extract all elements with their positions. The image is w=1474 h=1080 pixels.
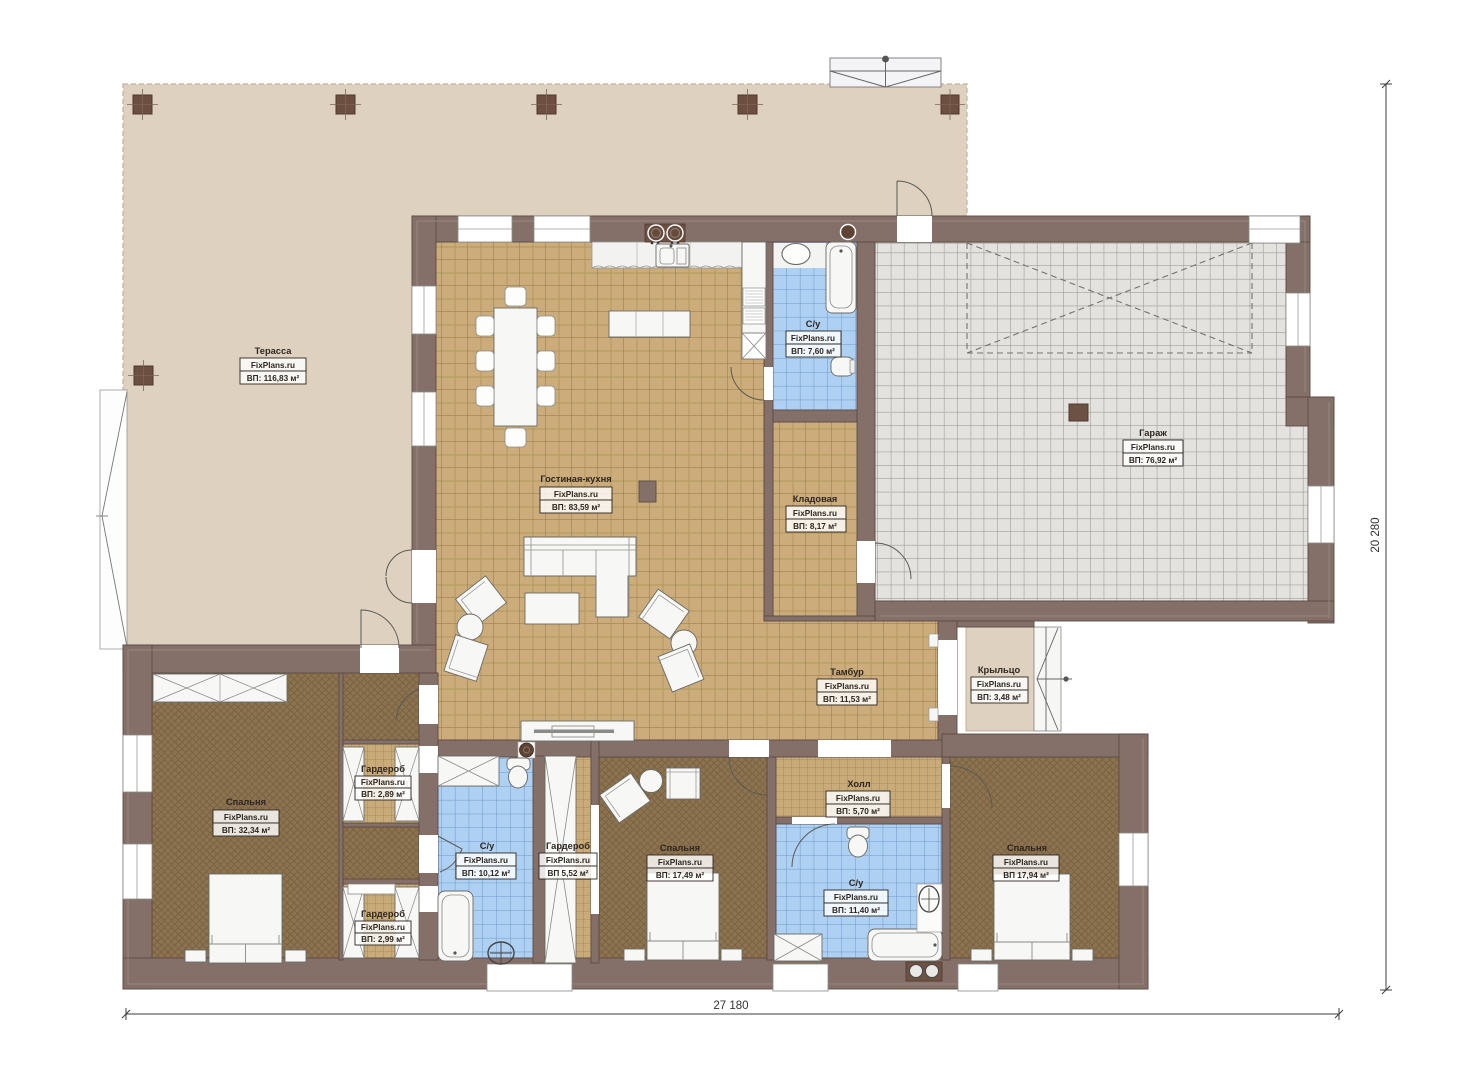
- svg-text:FixPlans.ru: FixPlans.ru: [361, 778, 405, 787]
- svg-text:ВП: 2,89 м²: ВП: 2,89 м²: [361, 790, 405, 799]
- svg-text:FixPlans.ru: FixPlans.ru: [793, 509, 837, 518]
- svg-text:FixPlans.ru: FixPlans.ru: [361, 923, 405, 932]
- svg-text:FixPlans.ru: FixPlans.ru: [554, 490, 598, 499]
- svg-text:Спальня: Спальня: [226, 797, 266, 807]
- svg-text:Гостиная-кухня: Гостиная-кухня: [540, 474, 611, 484]
- svg-text:Гараж: Гараж: [1139, 428, 1167, 438]
- svg-text:ВП: 8,17 м²: ВП: 8,17 м²: [793, 522, 837, 531]
- svg-text:ВП: 17,49 м²: ВП: 17,49 м²: [656, 871, 705, 880]
- svg-text:ВП: 10,12 м²: ВП: 10,12 м²: [462, 869, 511, 878]
- svg-text:Терасса: Терасса: [255, 346, 293, 356]
- svg-text:Гардероб: Гардероб: [361, 909, 405, 919]
- svg-text:FixPlans.ru: FixPlans.ru: [791, 334, 835, 343]
- svg-text:ВП: 5,70 м²: ВП: 5,70 м²: [836, 807, 880, 816]
- svg-text:FixPlans.ru: FixPlans.ru: [1004, 858, 1048, 867]
- svg-text:Холл: Холл: [847, 779, 870, 789]
- svg-text:ВП 5,52 м²: ВП 5,52 м²: [547, 869, 588, 878]
- svg-text:ВП: 116,83 м²: ВП: 116,83 м²: [247, 374, 300, 383]
- svg-text:FixPlans.ru: FixPlans.ru: [658, 858, 702, 867]
- svg-text:ВП: 2,99 м²: ВП: 2,99 м²: [361, 935, 405, 944]
- svg-text:ВП: 11,40 м²: ВП: 11,40 м²: [832, 906, 880, 915]
- svg-text:FixPlans.ru: FixPlans.ru: [834, 893, 878, 902]
- svg-text:Спальня: Спальня: [1007, 843, 1047, 853]
- svg-text:ВП: 83,59 м²: ВП: 83,59 м²: [552, 503, 601, 512]
- svg-text:20 280: 20 280: [1370, 517, 1382, 552]
- svg-text:Гардероб: Гардероб: [361, 764, 405, 774]
- svg-text:FixPlans.ru: FixPlans.ru: [251, 361, 295, 370]
- svg-text:FixPlans.ru: FixPlans.ru: [464, 856, 508, 865]
- svg-text:FixPlans.ru: FixPlans.ru: [546, 856, 590, 865]
- svg-text:FixPlans.ru: FixPlans.ru: [224, 813, 268, 822]
- svg-text:FixPlans.ru: FixPlans.ru: [1131, 443, 1175, 452]
- svg-text:ВП: 3,48 м²: ВП: 3,48 м²: [977, 693, 1021, 702]
- svg-text:ВП: 76,92 м²: ВП: 76,92 м²: [1129, 456, 1178, 465]
- svg-text:27 180: 27 180: [713, 1000, 748, 1012]
- svg-text:С/у: С/у: [480, 841, 495, 851]
- svg-text:Крыльцо: Крыльцо: [978, 665, 1021, 675]
- svg-text:Спальня: Спальня: [660, 843, 700, 853]
- svg-text:FixPlans.ru: FixPlans.ru: [836, 794, 880, 803]
- svg-text:Тамбур: Тамбур: [830, 667, 864, 677]
- svg-text:FixPlans.ru: FixPlans.ru: [825, 682, 869, 691]
- svg-text:ВП: 32,34 м²: ВП: 32,34 м²: [222, 826, 271, 835]
- svg-text:Кладовая: Кладовая: [793, 494, 838, 504]
- svg-text:ВП 17,94 м²: ВП 17,94 м²: [1003, 871, 1049, 880]
- svg-text:FixPlans.ru: FixPlans.ru: [977, 680, 1021, 689]
- svg-text:С/у: С/у: [849, 878, 864, 888]
- svg-text:С/у: С/у: [806, 319, 821, 329]
- svg-text:ВП: 7,60 м²: ВП: 7,60 м²: [791, 347, 835, 356]
- svg-text:ВП: 11,53 м²: ВП: 11,53 м²: [823, 695, 871, 704]
- svg-text:Гардероб: Гардероб: [546, 841, 590, 851]
